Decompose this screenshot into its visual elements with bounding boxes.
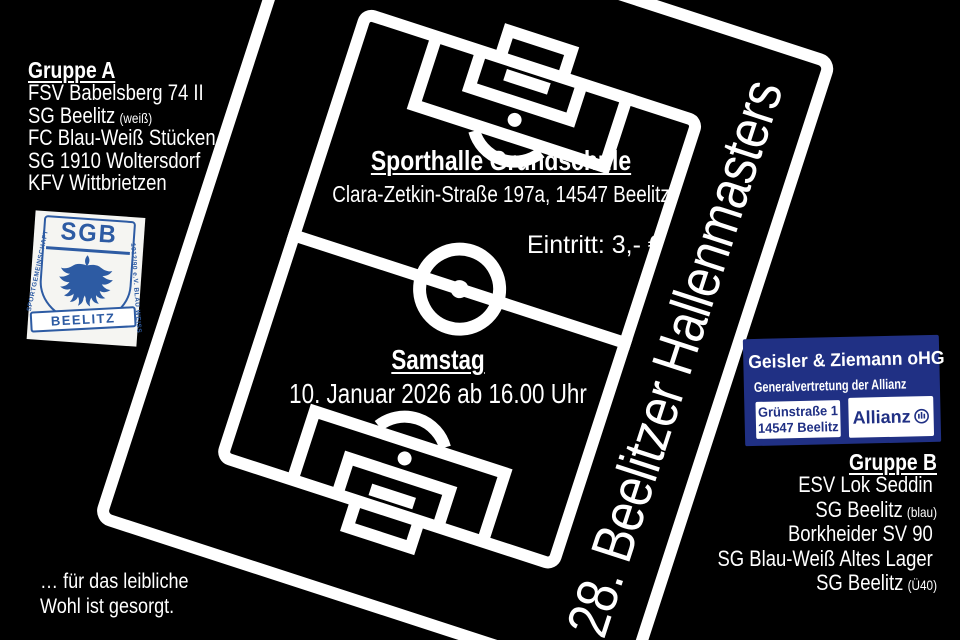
venue-name: Sporthalle Grundschule bbox=[329, 146, 673, 176]
poster-canvas: 28. Beelitzer Hallenmasters Gruppe A FSV… bbox=[0, 0, 960, 640]
team-name: SG Blau-Weiß Altes Lager bbox=[717, 546, 932, 571]
sponsor-brand-box: Allianz bbox=[848, 396, 934, 438]
sponsor-company: Geisler & Ziemann oHG bbox=[748, 347, 935, 373]
group-b-title: Gruppe B bbox=[660, 450, 937, 474]
team-name: FC Blau-Weiß Stücken bbox=[28, 125, 216, 150]
sponsor-city: 14547 Beelitz bbox=[758, 419, 839, 437]
catering-line-2: Wohl ist gesorgt. bbox=[40, 595, 189, 620]
team-name: SG Beelitz bbox=[816, 570, 903, 595]
team-row: ESV Lok Seddin bbox=[660, 474, 937, 499]
team-name: KFV Wittbrietzen bbox=[28, 170, 167, 195]
club-badge: SGB SPORTGEMEINSCHAFT 1912/90 e.V. BLAU … bbox=[27, 210, 146, 346]
sponsor-ad: Geisler & Ziemann oHG Generalvertretung … bbox=[743, 335, 941, 446]
team-note: (Ü40) bbox=[908, 577, 937, 593]
team-row: Borkheider SV 90 bbox=[660, 523, 937, 548]
admission-text: Eintritt: 3,- € bbox=[527, 231, 662, 260]
team-row: KFV Wittbrietzen bbox=[28, 173, 220, 196]
sponsor-street: Grünstraße 1 bbox=[758, 403, 838, 421]
team-name: FSV Babelsberg 74 II bbox=[28, 80, 204, 105]
sponsor-address: Grünstraße 1 14547 Beelitz bbox=[755, 400, 840, 439]
team-row: SG Blau-Weiß Altes Lager bbox=[660, 548, 937, 573]
team-row: SG Beelitz(blau) bbox=[660, 499, 937, 524]
allianz-logo-icon bbox=[913, 408, 929, 424]
badge-club-name: BEELITZ bbox=[30, 306, 137, 333]
team-name: ESV Lok Seddin bbox=[798, 472, 933, 497]
catering-note: … für das leibliche Wohl ist gesorgt. bbox=[40, 570, 189, 619]
group-a-title: Gruppe A bbox=[28, 58, 220, 82]
allianz-wordmark: Allianz bbox=[852, 406, 910, 428]
venue-address: Clara-Zetkin-Straße 197a, 14547 Beelitz bbox=[329, 181, 673, 208]
venue-block: Sporthalle Grundschule Clara-Zetkin-Stra… bbox=[329, 146, 673, 208]
catering-line-1: … für das leibliche bbox=[40, 570, 189, 595]
badge-right-text: 1912/90 e.V. BLAU WEISS bbox=[129, 243, 141, 315]
schedule-datetime: 10. Januar 2026 ab 16.00 Uhr bbox=[278, 378, 598, 410]
team-row: SG Beelitz(Ü40) bbox=[660, 572, 937, 597]
team-name: SG 1910 Woltersdorf bbox=[28, 148, 200, 173]
schedule-block: Samstag 10. Januar 2026 ab 16.00 Uhr bbox=[278, 345, 598, 410]
schedule-day: Samstag bbox=[278, 345, 598, 375]
group-b-block: Gruppe B ESV Lok Seddin SG Beelitz(blau)… bbox=[660, 450, 937, 597]
team-note: (blau) bbox=[907, 504, 937, 520]
group-a-block: Gruppe A FSV Babelsberg 74 II SG Beelitz… bbox=[28, 58, 220, 196]
team-note: (weiß) bbox=[120, 110, 153, 126]
team-name: Borkheider SV 90 bbox=[788, 521, 933, 546]
team-name: SG Beelitz bbox=[815, 497, 902, 522]
goal-area-bottom bbox=[284, 388, 513, 568]
team-name: SG Beelitz bbox=[28, 103, 115, 128]
sponsor-subtitle: Generalvertretung der Allianz bbox=[754, 376, 907, 395]
eagle-icon bbox=[55, 251, 117, 311]
